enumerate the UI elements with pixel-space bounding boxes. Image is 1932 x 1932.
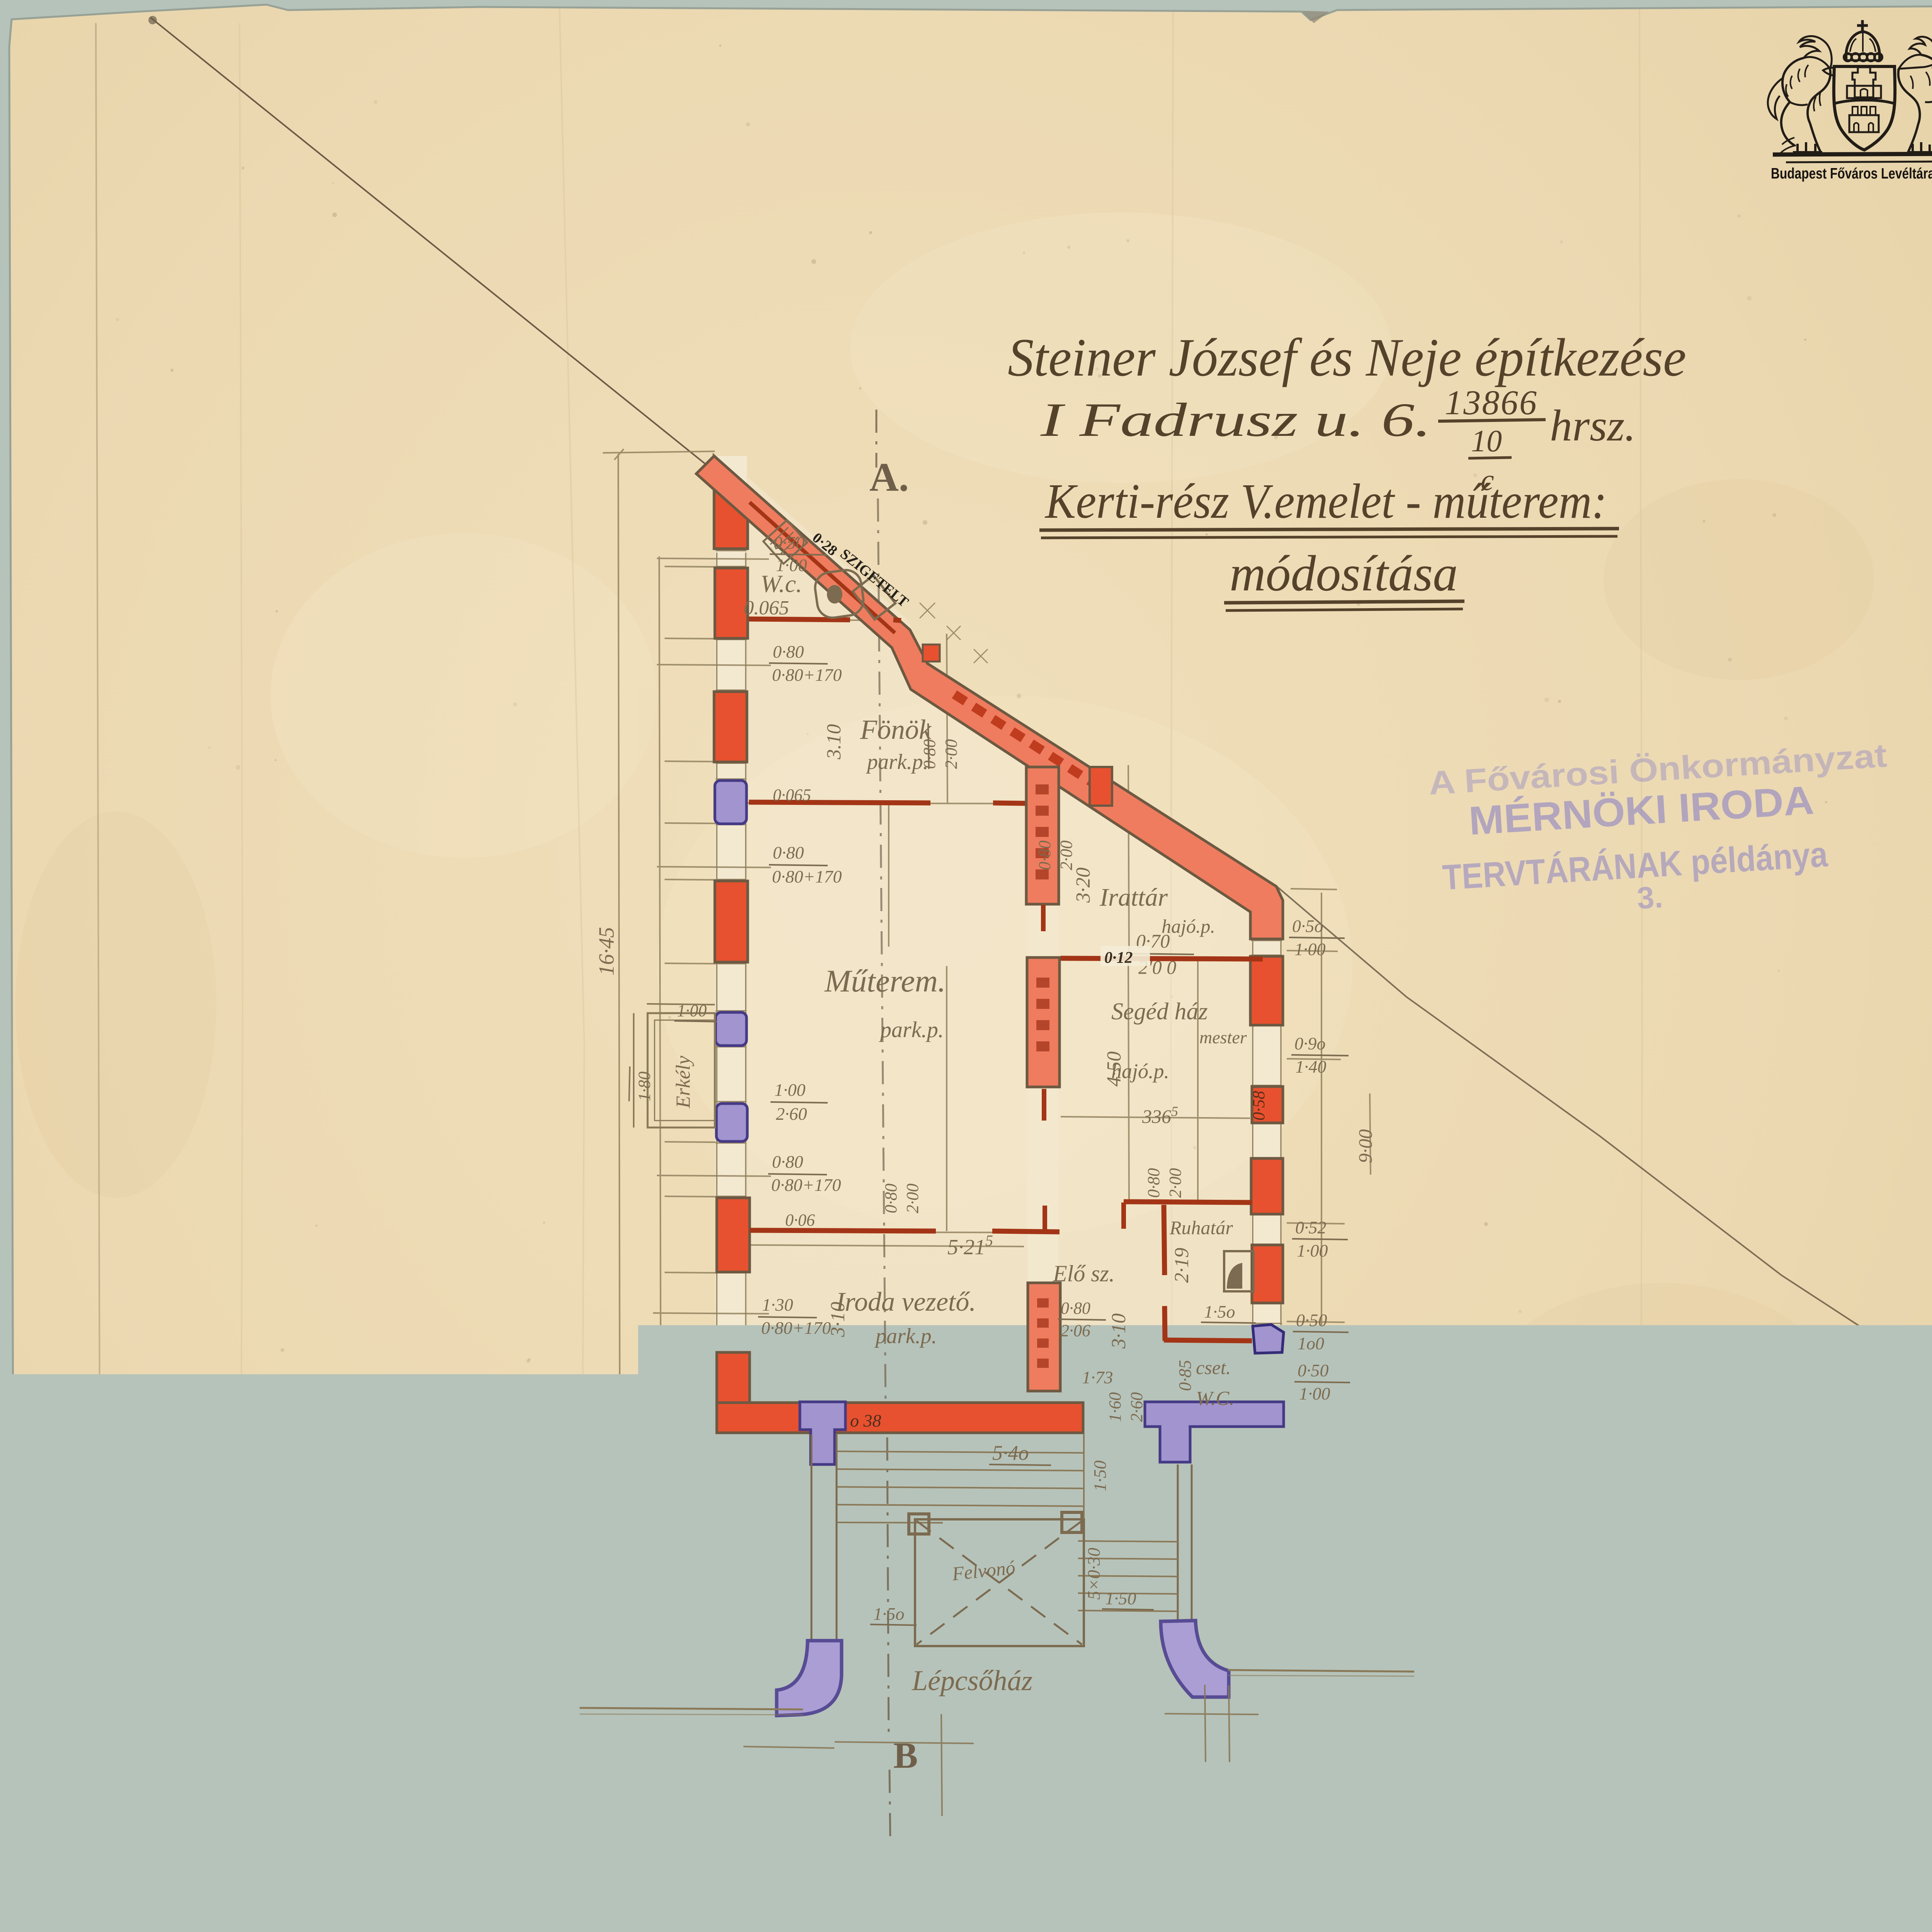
svg-text:2·60: 2·60 xyxy=(776,1104,807,1124)
svg-text:Steiner József és Neje építkez: Steiner József és Neje építkezése xyxy=(1008,328,1686,388)
svg-text:0·52: 0·52 xyxy=(1295,1218,1327,1237)
svg-text:1·40: 1·40 xyxy=(1295,1057,1327,1077)
svg-text:0·50: 0·50 xyxy=(1296,1310,1327,1330)
svg-text:4·50: 4·50 xyxy=(1103,1051,1125,1087)
svg-text:2·60: 2·60 xyxy=(1127,1392,1146,1422)
svg-text:0·80+170: 0·80+170 xyxy=(772,867,842,886)
svg-text:0·80+170: 0·80+170 xyxy=(761,1318,831,1338)
svg-text:A.: A. xyxy=(869,454,909,500)
svg-text:Ruhatár: Ruhatár xyxy=(1169,1217,1233,1238)
svg-text:2·00: 2·00 xyxy=(903,1184,922,1213)
svg-text:0·80+170: 0·80+170 xyxy=(771,1175,841,1195)
svg-text:0·80: 0·80 xyxy=(773,843,804,862)
svg-text:0·80: 0·80 xyxy=(773,642,804,662)
svg-text:mester: mester xyxy=(1199,1027,1247,1047)
svg-text:B: B xyxy=(893,1735,918,1776)
svg-text:1·5o: 1·5o xyxy=(873,1604,905,1624)
svg-text:16·45: 16·45 xyxy=(595,927,619,976)
svg-text:0·50: 0·50 xyxy=(1298,1361,1329,1380)
svg-text:1·50: 1·50 xyxy=(1105,1588,1136,1608)
svg-text:park.p.: park.p. xyxy=(874,1324,937,1348)
svg-text:3·20: 3·20 xyxy=(1072,867,1094,903)
svg-text:1·00: 1·00 xyxy=(1297,1241,1328,1260)
svg-text:2·00: 2·00 xyxy=(1166,1168,1185,1198)
svg-text:1·50: 1·50 xyxy=(1090,1461,1110,1492)
svg-text:1o0: 1o0 xyxy=(1298,1333,1324,1353)
svg-text:5·4o: 5·4o xyxy=(992,1441,1029,1464)
svg-text:1·30: 1·30 xyxy=(762,1295,793,1315)
svg-text:W.C.: W.C. xyxy=(1196,1388,1234,1410)
svg-text:2·06: 2·06 xyxy=(1061,1321,1090,1340)
svg-text:0·12: 0·12 xyxy=(1104,949,1133,967)
svg-text:park.p.: park.p. xyxy=(866,750,929,774)
svg-text:I Fadrusz u. 6.: I Fadrusz u. 6. xyxy=(1040,393,1431,446)
svg-text:0·80+170: 0·80+170 xyxy=(772,665,842,685)
svg-text:0.065: 0.065 xyxy=(744,597,789,619)
svg-text:10: 10 xyxy=(1471,424,1502,458)
svg-text:0·85: 0·85 xyxy=(1175,1360,1195,1391)
svg-text:0·50: 0·50 xyxy=(774,533,805,553)
svg-text:0·80: 0·80 xyxy=(1061,1299,1090,1318)
svg-text:0·58: 0·58 xyxy=(1249,1091,1268,1121)
svg-text:2·00: 2·00 xyxy=(1057,840,1076,870)
svg-text:2·19: 2·19 xyxy=(1171,1248,1193,1283)
svg-text:0·5o: 0·5o xyxy=(1292,916,1323,936)
svg-text:1·00: 1·00 xyxy=(1299,1384,1330,1403)
svg-text:módosítása: módosítása xyxy=(1230,545,1458,602)
svg-text:1·80: 1·80 xyxy=(635,1071,654,1101)
svg-text:Irattár: Irattár xyxy=(1099,883,1168,912)
svg-text:Segéd ház: Segéd ház xyxy=(1111,998,1208,1025)
svg-text:1·5o: 1·5o xyxy=(1204,1302,1235,1321)
svg-text:0·80: 0·80 xyxy=(881,1184,900,1213)
svg-text:Erkély: Erkély xyxy=(672,1055,694,1109)
svg-text:9·00: 9·00 xyxy=(1354,1129,1376,1163)
svg-text:3·10: 3·10 xyxy=(1108,1313,1130,1349)
svg-text:park.p.: park.p. xyxy=(879,1017,944,1042)
svg-text:0·065: 0·065 xyxy=(773,786,811,804)
svg-text:0·9o: 0·9o xyxy=(1294,1034,1326,1053)
svg-text:1·00: 1·00 xyxy=(774,1080,806,1100)
svg-text:0·80: 0·80 xyxy=(1035,840,1054,870)
svg-text:cset.: cset. xyxy=(1196,1357,1231,1378)
svg-text:Lépcsőház: Lépcsőház xyxy=(912,1665,1032,1697)
svg-text:0·80: 0·80 xyxy=(772,1152,803,1172)
svg-text:1·60: 1·60 xyxy=(1105,1392,1124,1422)
svg-text:1·00: 1·00 xyxy=(1294,939,1326,959)
svg-text:1·00: 1·00 xyxy=(677,1001,707,1020)
svg-text:Műterem.: Műterem. xyxy=(824,963,946,998)
svg-text:0·80: 0·80 xyxy=(1144,1168,1163,1198)
svg-text:3.: 3. xyxy=(1636,879,1664,915)
svg-text:2·00: 2·00 xyxy=(942,739,961,769)
svg-text:o 38: o 38 xyxy=(850,1411,881,1430)
svg-text:3·10: 3·10 xyxy=(827,1302,849,1337)
svg-text:hrsz.: hrsz. xyxy=(1550,401,1636,451)
svg-text:Budapest Főváros Levéltára: Budapest Főváros Levéltára xyxy=(1771,165,1932,182)
svg-text:1·00: 1·00 xyxy=(776,555,807,575)
svg-text:Kerti-rész V.emelet - műterem:: Kerti-rész V.emelet - műterem: xyxy=(1044,474,1607,529)
svg-text:Iroda vezető.: Iroda vezető. xyxy=(835,1287,976,1317)
svg-text:5×0·30: 5×0·30 xyxy=(1084,1548,1104,1600)
svg-text:0·06: 0·06 xyxy=(785,1211,815,1230)
svg-text:3.10: 3.10 xyxy=(823,724,845,760)
svg-text:1·73: 1·73 xyxy=(1082,1367,1113,1387)
svg-text:Elő sz.: Elő sz. xyxy=(1053,1261,1115,1286)
svg-text:13866: 13866 xyxy=(1445,384,1537,422)
